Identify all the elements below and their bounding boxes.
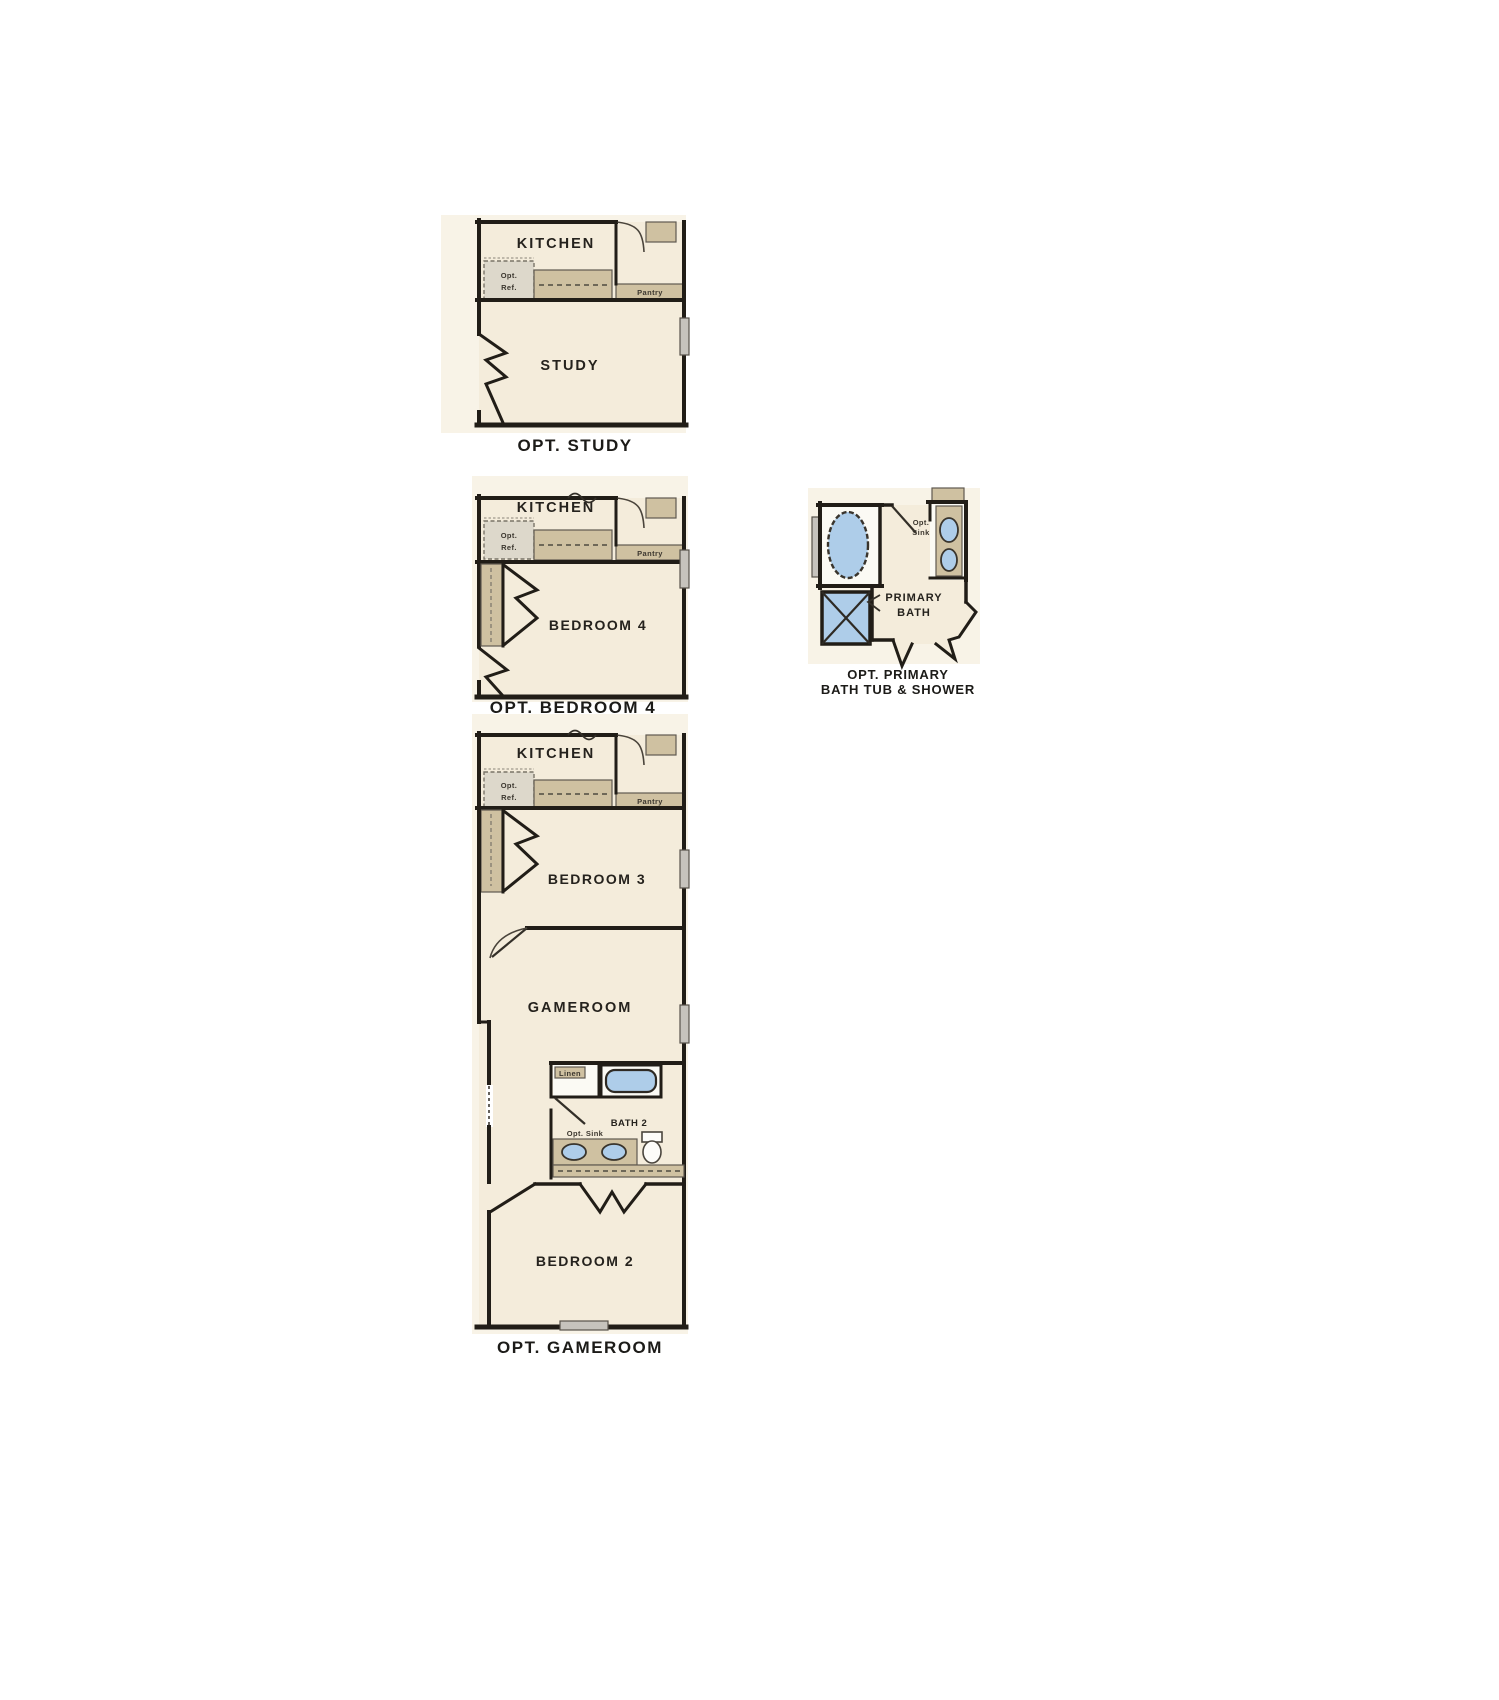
opt-ref-label-1: Opt. (501, 781, 518, 790)
gameroom-label: GAMEROOM (528, 1000, 633, 1016)
caption-opt-study: OPT. STUDY (460, 436, 690, 456)
opt-refrigerator-box (484, 261, 534, 299)
bathtub-fixture (828, 512, 868, 578)
wardrobe-strip (553, 1165, 684, 1177)
sink-fixture (941, 549, 957, 571)
opt-refrigerator-box (484, 772, 534, 808)
opt-ref-label-1: Opt. (501, 531, 518, 540)
window-marker (560, 1321, 608, 1330)
bedroom2-label: BEDROOM 2 (536, 1253, 634, 1269)
floor-area (479, 222, 684, 425)
bedroom4-label: BEDROOM 4 (549, 617, 647, 633)
pantry-label: Pantry (637, 549, 663, 558)
pantry-label: Pantry (637, 797, 663, 806)
caption-opt-primary-bath: OPT. PRIMARY BATH TUB & SHOWER (798, 667, 998, 697)
plan-opt-study: Opt. Ref. Pantry KITCHEN STUDY (408, 180, 688, 440)
window-marker (680, 550, 689, 588)
plan-opt-gameroom: Opt. Ref. Pantry KITCHEN BEDROOM 3 GAMER… (408, 710, 708, 1370)
opt-sink-label-2: Sink (912, 528, 930, 537)
caption-line-1: OPT. PRIMARY (798, 667, 998, 682)
opt-refrigerator-box (484, 521, 534, 559)
window-marker (812, 517, 819, 577)
study-label: STUDY (540, 358, 599, 374)
upper-cabinet (646, 222, 676, 242)
upper-cabinet (646, 498, 676, 518)
kitchen-label: KITCHEN (517, 746, 595, 762)
kitchen-label: KITCHEN (517, 236, 595, 252)
kitchen-counter (534, 530, 612, 560)
window-marker (680, 1005, 689, 1043)
opt-sink-label: Opt. Sink (567, 1129, 604, 1138)
kitchen-counter (534, 780, 612, 808)
bathtub-fixture (606, 1070, 656, 1092)
window-marker (680, 318, 689, 355)
bedroom3-label: BEDROOM 3 (548, 871, 646, 887)
opt-sink-label-1: Opt. (913, 518, 930, 527)
vanity-backsplash (932, 488, 964, 502)
sink-fixture (562, 1144, 586, 1160)
opt-ref-label-2: Ref. (501, 283, 517, 292)
window-marker (680, 850, 689, 888)
primary-bath-label-2: BATH (897, 607, 931, 619)
opt-ref-label-2: Ref. (501, 793, 517, 802)
bath2-label: BATH 2 (611, 1118, 648, 1129)
sink-fixture (602, 1144, 626, 1160)
floor-plan-sheet: Opt. Ref. Pantry KITCHEN STUDY OPT. STUD… (0, 0, 1499, 1700)
primary-bath-label-1: PRIMARY (885, 592, 942, 604)
upper-cabinet (646, 735, 676, 755)
pantry-label: Pantry (637, 288, 663, 297)
opt-ref-label-1: Opt. (501, 271, 518, 280)
plan-opt-bedroom4: Opt. Ref. Pantry KITCHEN BEDROOM 4 (408, 460, 688, 722)
toilet-bowl (643, 1141, 661, 1163)
kitchen-label: KITCHEN (517, 500, 595, 516)
floor-area (479, 735, 684, 1327)
caption-line-2: BATH TUB & SHOWER (798, 682, 998, 697)
kitchen-counter (534, 270, 612, 300)
opt-ref-label-2: Ref. (501, 543, 517, 552)
caption-opt-gameroom: OPT. GAMEROOM (465, 1338, 695, 1358)
sink-fixture (940, 518, 958, 542)
linen-label: Linen (559, 1069, 581, 1078)
